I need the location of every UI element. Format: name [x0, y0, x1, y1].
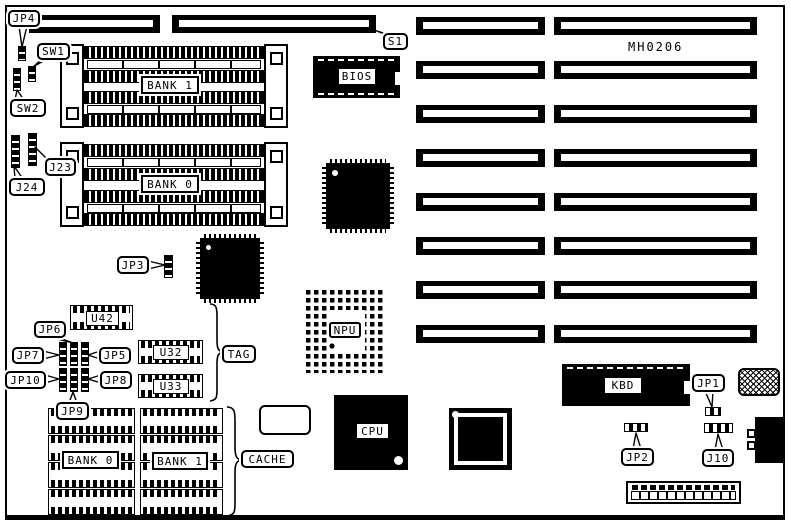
- power-connector-pins: [631, 491, 736, 500]
- simm-latch-left: [60, 142, 84, 227]
- isa-slot-long: [554, 193, 757, 211]
- simm-socket: [84, 213, 264, 226]
- jp1-jumper: [705, 407, 721, 416]
- u33-chip: U33: [138, 374, 203, 398]
- plcc-socket: [449, 408, 512, 470]
- cpu-chip: CPU: [334, 395, 408, 470]
- bank1-label: BANK 1: [141, 76, 199, 94]
- expansion-slot-s1-long: [172, 15, 376, 33]
- isa-slot-short: [416, 61, 545, 79]
- qfp-pins-right: [260, 242, 264, 295]
- jp6-label: JP6: [34, 321, 66, 338]
- jp8-label: JP8: [100, 371, 132, 389]
- bios-chip: BIOS: [313, 56, 400, 98]
- isa-slot-long: [554, 61, 757, 79]
- jp6-jumper: [70, 342, 78, 366]
- qfp-pins-right: [390, 167, 394, 225]
- keyboard-connector-tab: [747, 441, 756, 450]
- isa-slot-short: [416, 325, 545, 343]
- cache-label: CACHE: [241, 450, 294, 468]
- jp9-label: JP9: [56, 402, 89, 420]
- pin1-dot: [394, 456, 403, 465]
- jp4-jumper: [18, 46, 26, 61]
- u42-label: U42: [86, 311, 119, 326]
- keyboard-connector-tab: [747, 429, 756, 438]
- crystal-socket: [259, 405, 311, 435]
- j24-label: J24: [9, 178, 45, 196]
- isa-slot-long: [554, 105, 757, 123]
- bank0-label: BANK 0: [141, 175, 199, 193]
- jp10-jumper: [59, 368, 67, 392]
- qfp-body: [326, 163, 390, 229]
- j24-header: [11, 135, 20, 168]
- motherboard-diagram: MH0206 BANK 1 BANK 0: [0, 0, 791, 527]
- sw1-label: SW1: [37, 43, 70, 60]
- jp3-jumper: [164, 255, 173, 278]
- jp7-label: JP7: [12, 347, 44, 364]
- jp5-jumper: [81, 342, 89, 366]
- isa-slot-short: [416, 193, 545, 211]
- kbd-label: KBD: [604, 377, 642, 394]
- jp5-label: JP5: [99, 347, 131, 364]
- jp1-label: JP1: [692, 374, 725, 392]
- s1-label: S1: [383, 33, 408, 50]
- u33-label: U33: [153, 379, 189, 394]
- power-connector: [626, 481, 741, 504]
- j23-header: [28, 133, 37, 166]
- j10-jumper: [704, 423, 733, 433]
- simm-socket-body: [87, 204, 261, 213]
- bios-notch: [395, 72, 400, 85]
- piezo-speaker: [738, 368, 780, 396]
- isa-slot-long: [554, 237, 757, 255]
- qfp-body: [200, 238, 260, 299]
- simm-latch-right: [264, 142, 288, 227]
- cache-bank1-label: BANK 1: [152, 452, 208, 470]
- simm-socket-body: [87, 105, 261, 114]
- kbd-chip: KBD: [562, 364, 690, 406]
- pin1-dot: [206, 245, 211, 250]
- u32-chip: U32: [138, 340, 203, 364]
- jp9-jumper: [70, 368, 78, 392]
- isa-slot-long: [554, 17, 757, 35]
- jp10-label: JP10: [5, 371, 46, 389]
- kbd-notch: [684, 381, 690, 394]
- npu-socket: NPU: [306, 290, 386, 373]
- pin1-dot: [332, 170, 338, 176]
- cache-chip: [140, 489, 223, 515]
- isa-slot-short: [416, 149, 545, 167]
- part-number: MH0206: [628, 40, 708, 54]
- chipset-qfp-lower: [196, 234, 264, 303]
- simm-socket: [84, 144, 264, 157]
- u32-label: U32: [153, 345, 189, 360]
- simm-socket-body: [87, 158, 261, 167]
- isa-slot-short: [416, 281, 545, 299]
- bios-label: BIOS: [338, 68, 376, 85]
- expansion-slot-s1-short: [29, 15, 160, 33]
- isa-slot-long: [554, 325, 757, 343]
- keyboard-connector: [755, 417, 785, 463]
- j23-label: J23: [45, 158, 76, 176]
- npu-label: NPU: [329, 322, 361, 338]
- simm-socket: [84, 46, 264, 59]
- cpu-label: CPU: [356, 423, 389, 439]
- isa-slot-short: [416, 17, 545, 35]
- power-connector-tabs: [632, 485, 735, 490]
- cache-chip: [48, 489, 135, 515]
- isa-slot-long: [554, 149, 757, 167]
- simm-latch-right: [264, 44, 288, 128]
- jp3-label: JP3: [117, 256, 149, 274]
- jp7-jumper: [59, 342, 67, 366]
- qfp-pins-bottom: [330, 229, 386, 233]
- sw1-switch: [28, 66, 36, 82]
- sw2-label: SW2: [10, 99, 46, 117]
- sw2-switch: [13, 68, 21, 91]
- isa-slot-short: [416, 237, 545, 255]
- cache-chip: [140, 408, 223, 434]
- simm-socket: [84, 114, 264, 127]
- isa-slot-short: [416, 105, 545, 123]
- qfp-pins-bottom: [204, 299, 256, 303]
- simm-socket-body: [87, 60, 261, 69]
- jp4-label: JP4: [8, 10, 40, 27]
- cache-bank0-label: BANK 0: [62, 451, 119, 469]
- jp2-jumper: [624, 423, 648, 432]
- j10-label: J10: [702, 449, 734, 467]
- tag-label: TAG: [222, 345, 256, 363]
- pin1-dot: [452, 411, 459, 418]
- plcc-body: [458, 417, 503, 461]
- jp2-label: JP2: [621, 448, 654, 466]
- chipset-qfp-upper: [322, 159, 394, 233]
- isa-slot-long: [554, 281, 757, 299]
- u42-chip: U42: [70, 305, 133, 330]
- jp8-jumper: [81, 368, 89, 392]
